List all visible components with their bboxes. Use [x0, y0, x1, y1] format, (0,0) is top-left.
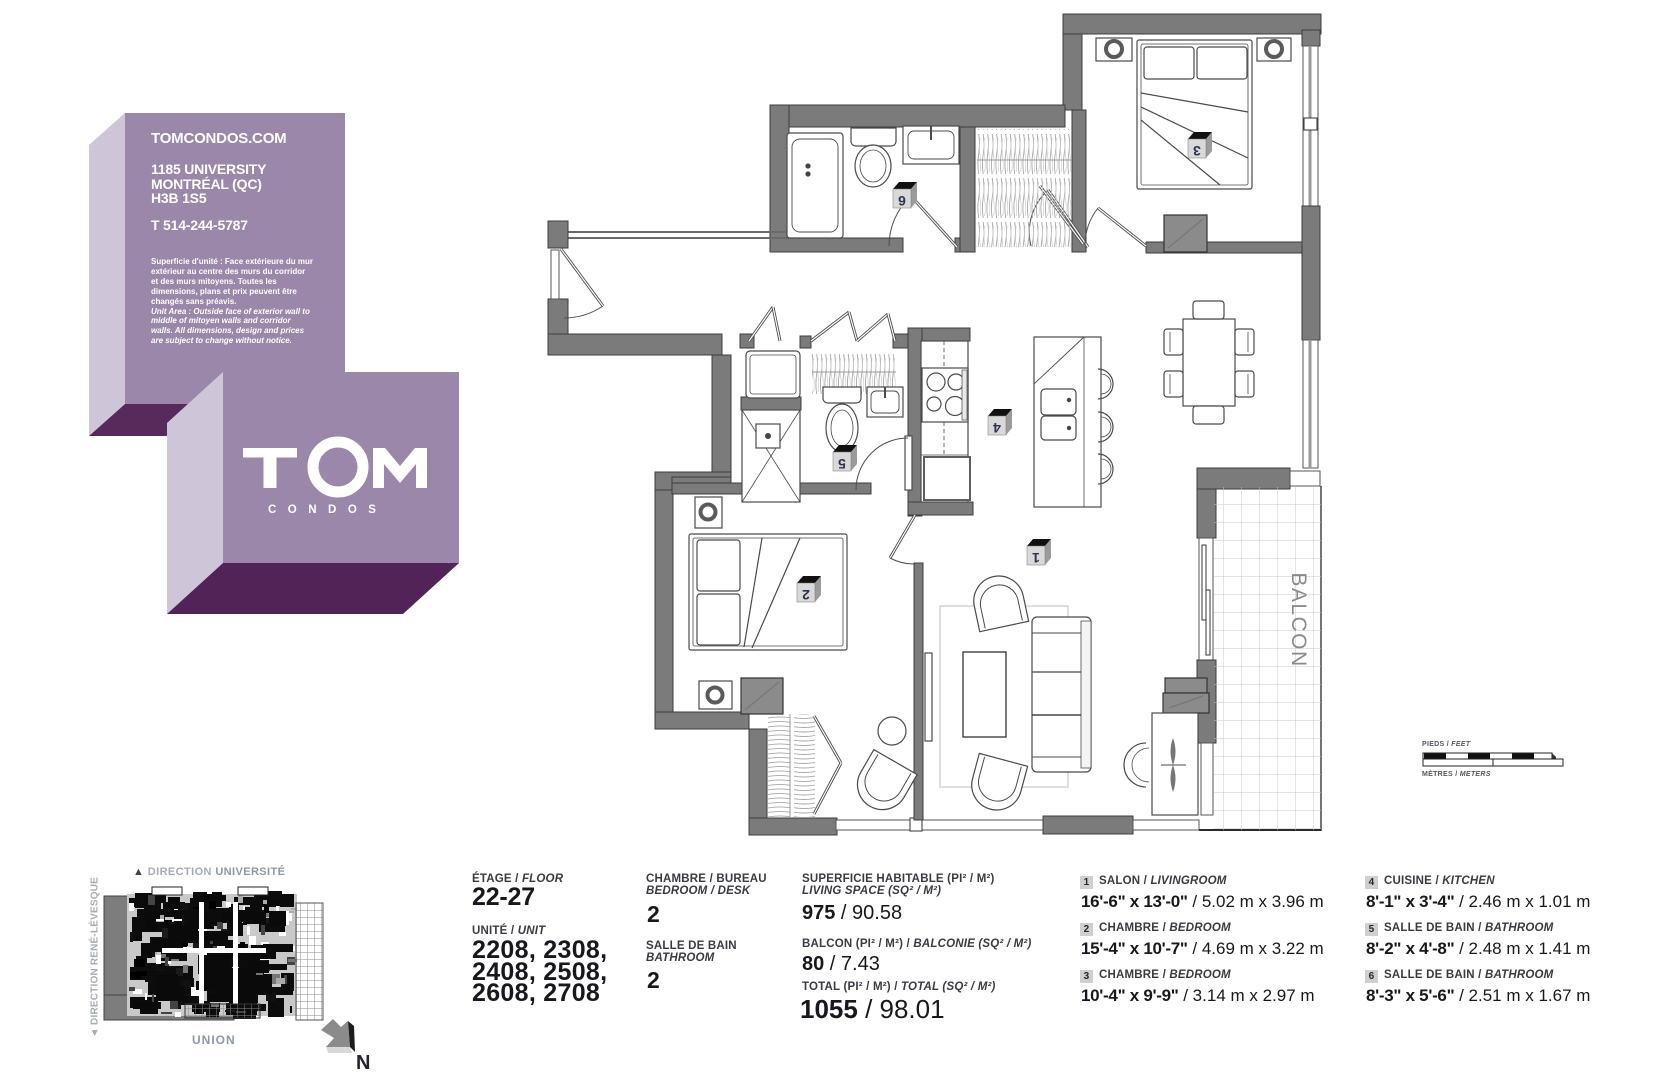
svg-text:BALCON: BALCON [1287, 572, 1310, 667]
svg-text:4: 4 [993, 420, 1001, 436]
svg-text:1: 1 [1032, 550, 1040, 566]
svg-text:5: 5 [838, 456, 846, 472]
svg-text:3: 3 [1193, 143, 1201, 159]
svg-text:2: 2 [802, 587, 810, 603]
svg-text:6: 6 [898, 193, 906, 209]
svg-text:CONDOS: CONDOS [268, 504, 387, 516]
